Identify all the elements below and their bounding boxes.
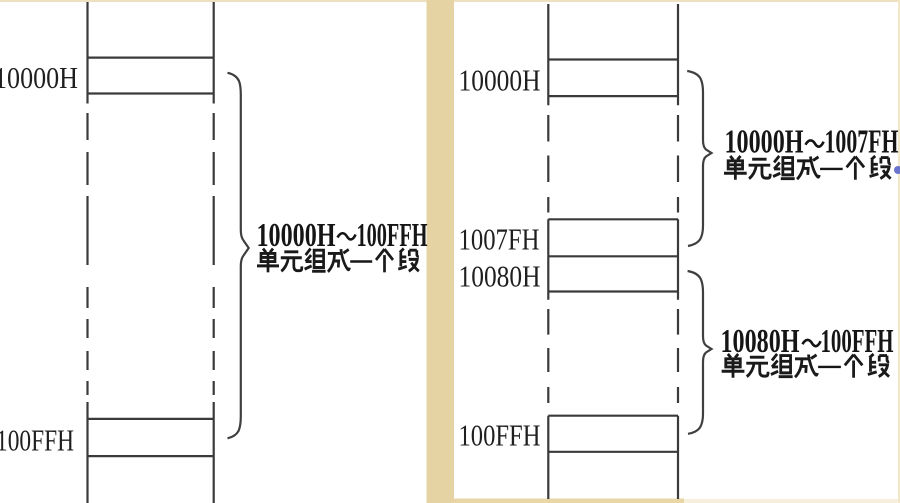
svg-text:10000H: 10000H: [257, 217, 336, 254]
svg-text:1007FH: 1007FH: [459, 222, 540, 257]
svg-text:100FFH: 100FFH: [357, 217, 428, 254]
svg-text:100FFH: 100FFH: [459, 417, 541, 452]
svg-text:100FFH: 100FFH: [0, 423, 74, 458]
svg-text:10000H: 10000H: [0, 60, 78, 95]
svg-text:10000H: 10000H: [459, 62, 541, 97]
svg-text:10080H: 10080H: [459, 258, 541, 293]
svg-text:1007FH: 1007FH: [825, 123, 899, 160]
svg-text:10000H: 10000H: [725, 123, 804, 160]
